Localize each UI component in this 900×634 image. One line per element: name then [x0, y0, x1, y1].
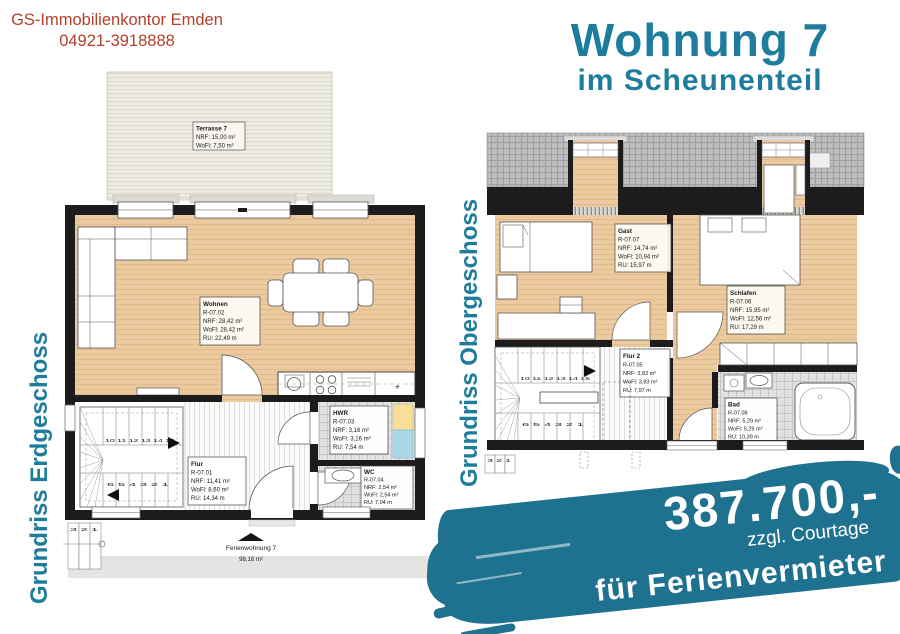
svg-text:R-07.04: R-07.04 — [364, 478, 384, 484]
terrace-label: Terrasse 7 NRF: 15,00 m² WoFl: 7,50 m² — [193, 122, 245, 150]
svg-text:RU: 7,54 m: RU: 7,54 m — [333, 445, 363, 451]
svg-text:R-07.05: R-07.05 — [623, 363, 643, 369]
hall-label: Flur R-07.01 NRF: 11,41 m² WoFl: 8,60 m²… — [188, 457, 246, 505]
agency-phone: 04921-3918888 — [8, 31, 226, 52]
svg-text:RU: 10,39 m: RU: 10,39 m — [728, 435, 759, 441]
svg-text:Terrasse 7: Terrasse 7 — [196, 126, 228, 133]
svg-text:3 2 1: 3 2 1 — [487, 458, 512, 463]
svg-text:NRF: 3,83 m²: NRF: 3,83 m² — [623, 371, 656, 377]
bath-label: Bad R-07.08 NRF: 5,29 m² WoFl: 5,29 m² R… — [725, 398, 777, 444]
svg-text:Gast: Gast — [618, 228, 633, 235]
svg-text:WoFl: 10,94 m²: WoFl: 10,94 m² — [618, 255, 659, 261]
living-room-label: Wohnen R-07.02 NRF: 28,42 m² WoFl: 28,42… — [200, 297, 260, 345]
svg-text:WoFl: 3,16 m²: WoFl: 3,16 m² — [333, 437, 371, 443]
upper-staircase: 10 11 12 13 14 15 6 5 4 3 2 1 — [495, 347, 600, 447]
exterior-steps: 3 2 1 — [63, 523, 105, 569]
svg-text:Ferienwohnung 7: Ferienwohnung 7 — [226, 545, 277, 552]
title-line1: Wohnung 7 — [490, 16, 900, 64]
kitchen-counter: ✳ — [278, 372, 415, 397]
svg-text:R-07.01: R-07.01 — [191, 471, 213, 477]
svg-text:R-07.03: R-07.03 — [333, 420, 355, 426]
bedroom-label: Schlafen R-07.06 NRF: 15,95 m² WoFl: 12,… — [727, 286, 785, 334]
svg-text:NRF: 15,95 m²: NRF: 15,95 m² — [730, 308, 769, 314]
left-wall-window — [65, 405, 75, 431]
svg-text:98,16 m²: 98,16 m² — [239, 557, 263, 563]
svg-text:RU: 7,97 m: RU: 7,97 m — [623, 388, 651, 394]
washer-icon — [393, 404, 413, 430]
svg-text:Flur 2: Flur 2 — [623, 353, 641, 360]
svg-text:WoFl: 5,29 m²: WoFl: 5,29 m² — [728, 427, 763, 433]
staircase: 10 11 12 13 14 15 6 5 4 3 2 1 — [80, 407, 183, 507]
svg-text:R-07.02: R-07.02 — [203, 311, 225, 317]
bath-wc-icon — [724, 375, 744, 391]
upper-floor-plan: Gast R-07.07 NRF: 14,74 m² WoFl: 10,94 m… — [480, 125, 875, 475]
svg-text:WoFl: 2,54 m²: WoFl: 2,54 m² — [364, 493, 399, 499]
svg-text:WoFl: 3,83 m²: WoFl: 3,83 m² — [623, 380, 658, 386]
agency-header: GS-Immobilienkontor Emden 04921-3918888 — [8, 10, 226, 51]
terrace: Terrasse 7 NRF: 15,00 m² WoFl: 7,50 m² — [107, 72, 332, 200]
dryer-icon — [393, 430, 413, 458]
ground-floor-plan: Terrasse 7 NRF: 15,00 m² WoFl: 7,50 m² W… — [55, 70, 435, 590]
svg-text:R-07.07: R-07.07 — [618, 238, 640, 244]
svg-text:NRF: 11,41 m²: NRF: 11,41 m² — [191, 479, 230, 485]
svg-text:R-07.08: R-07.08 — [728, 411, 748, 417]
svg-text:NRF: 15,00 m²: NRF: 15,00 m² — [196, 135, 235, 141]
svg-text:HWR: HWR — [333, 410, 348, 417]
roof-window — [807, 153, 830, 168]
svg-text:RU: 14,34 m: RU: 14,34 m — [191, 496, 225, 502]
bed-headboard — [764, 165, 794, 213]
dormer-left — [564, 136, 627, 215]
sideboard — [137, 388, 179, 395]
svg-text:Bad: Bad — [728, 402, 740, 409]
svg-text:RU: 17,29 m: RU: 17,29 m — [730, 325, 764, 331]
svg-text:RU: 22,49 m: RU: 22,49 m — [203, 336, 237, 342]
svg-text:3 2 1: 3 2 1 — [70, 527, 99, 532]
svg-text:NRF: 28,42 m²: NRF: 28,42 m² — [203, 319, 242, 325]
top-wall-windows — [113, 195, 374, 218]
upper-exterior-steps: 3 2 1 — [485, 455, 515, 473]
svg-text:WoFl: 28,42 m²: WoFl: 28,42 m² — [203, 328, 244, 334]
wardrobe — [720, 343, 857, 365]
svg-text:6 5 4 3 2 1: 6 5 4 3 2 1 — [522, 422, 585, 427]
post-outline — [580, 452, 588, 468]
svg-text:NRF: 2,54 m²: NRF: 2,54 m² — [364, 485, 397, 491]
svg-text:NRF: 5,29 m²: NRF: 5,29 m² — [728, 419, 761, 425]
wc-label: WC R-07.04 NRF: 2,54 m² WoFl: 2,54 m² RU… — [361, 466, 413, 509]
svg-text:R-07.06: R-07.06 — [730, 300, 752, 306]
svg-text:WoFl: 7,50 m²: WoFl: 7,50 m² — [196, 144, 234, 150]
ground-floor-label: Grundriss Erdgeschoss — [26, 323, 56, 613]
freezer-icon: ✳ — [395, 384, 400, 391]
svg-text:10 11 12 13 14 15: 10 11 12 13 14 15 — [520, 376, 591, 381]
svg-text:RU: 7,04 m: RU: 7,04 m — [364, 500, 392, 506]
banner-text: 387.700,- zzgl. Courtage für Ferienvermi… — [586, 468, 888, 609]
svg-text:Wohnen: Wohnen — [203, 301, 228, 308]
title-line2: im Scheunenteil — [490, 64, 900, 98]
bath-sink-icon — [746, 373, 772, 388]
agency-name: GS-Immobilienkontor Emden — [8, 10, 226, 31]
bathtub-icon — [795, 383, 855, 440]
svg-text:NRF: 3,16 m²: NRF: 3,16 m² — [333, 428, 369, 434]
svg-text:10 11 12 13 14 15: 10 11 12 13 14 15 — [105, 438, 176, 443]
hall2-label: Flur 2 R-07.05 NRF: 3,83 m² WoFl: 3,83 m… — [620, 349, 670, 397]
gable-icon — [238, 533, 264, 541]
svg-text:Schlafen: Schlafen — [730, 290, 756, 297]
svg-text:WoFl: 12,56 m²: WoFl: 12,56 m² — [730, 317, 771, 323]
wc-basin-icon — [325, 468, 361, 483]
svg-text:WC: WC — [364, 469, 375, 476]
svg-text:WoFl: 8,60 m²: WoFl: 8,60 m² — [191, 488, 229, 494]
page-title: Wohnung 7 im Scheunenteil — [490, 16, 900, 98]
guest-room-label: Gast R-07.07 NRF: 14,74 m² WoFl: 10,94 m… — [615, 224, 671, 272]
utility-label: HWR R-07.03 NRF: 3,16 m² WoFl: 3,16 m² R… — [330, 406, 388, 454]
svg-text:NRF: 14,74 m²: NRF: 14,74 m² — [618, 246, 657, 252]
svg-text:RU: 15,97 m: RU: 15,97 m — [618, 263, 652, 269]
dormer-right — [753, 136, 814, 215]
svg-text:Flur: Flur — [191, 461, 203, 468]
svg-text:6 5 4 3 2 1: 6 5 4 3 2 1 — [107, 482, 170, 487]
double-bed — [700, 215, 800, 285]
right-wall-window — [415, 408, 425, 458]
